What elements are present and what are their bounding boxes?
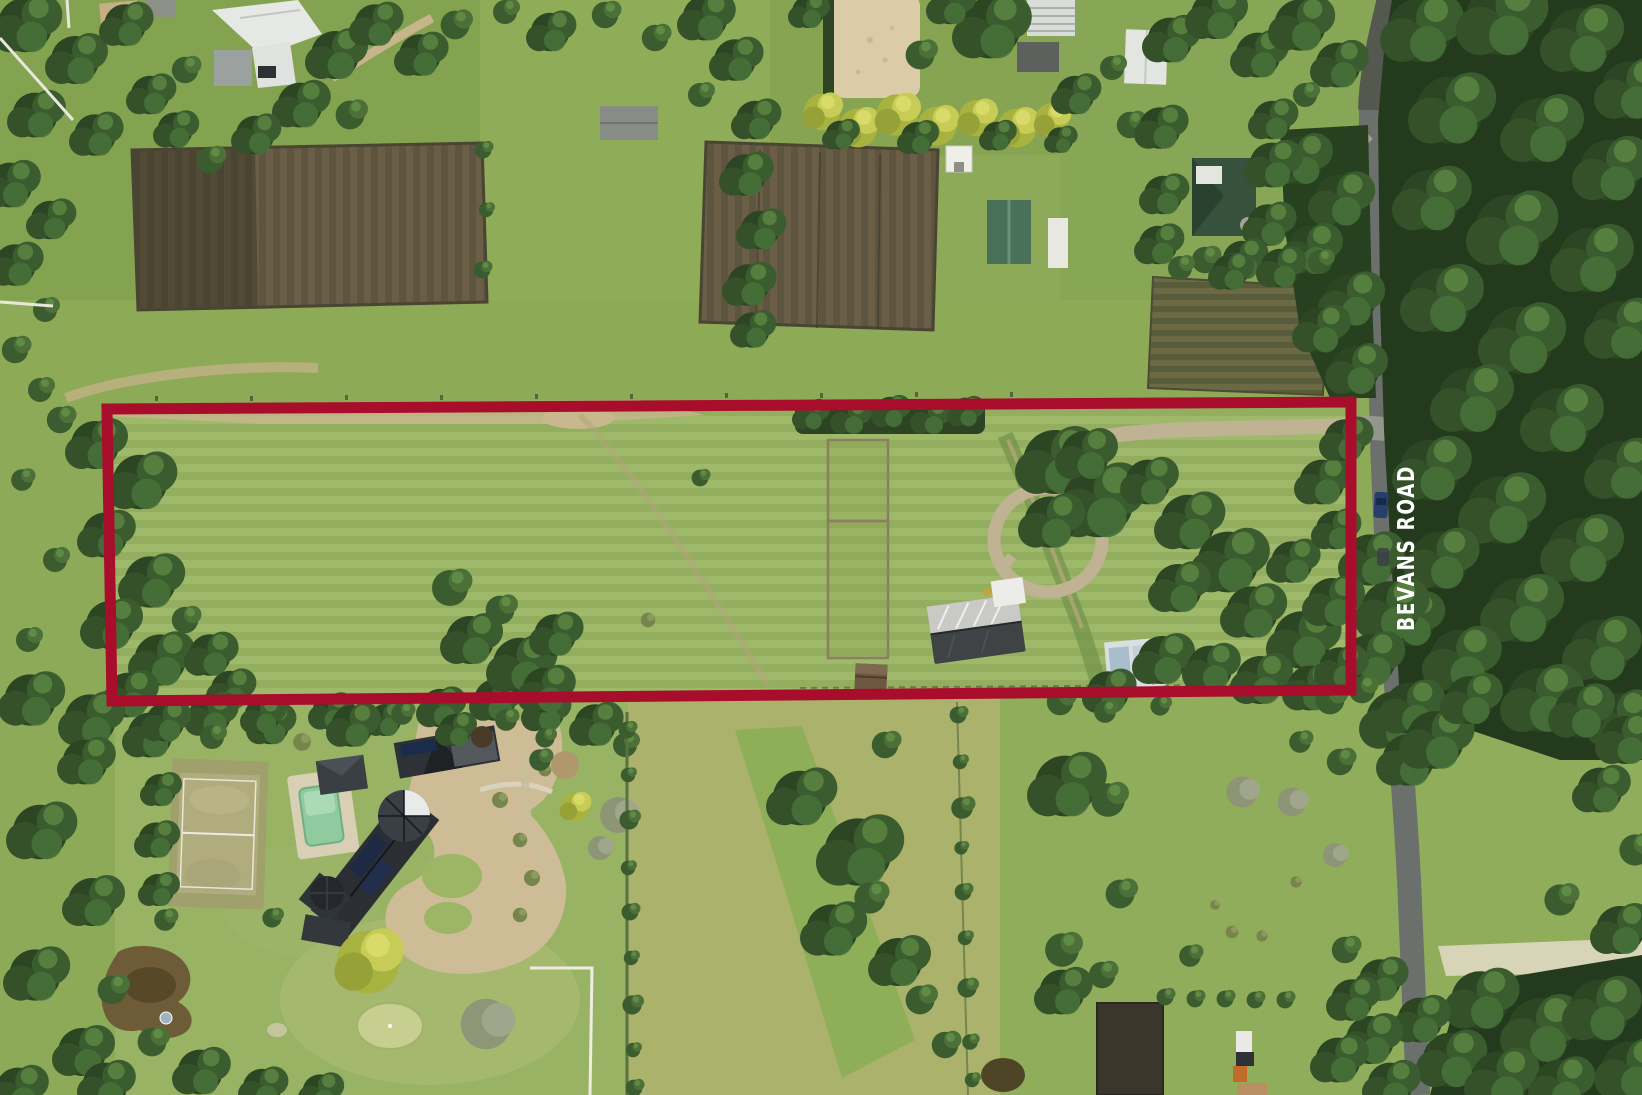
tilled-paddock-west [132,143,487,310]
garden-umbrella [160,1012,172,1024]
tennis-court [167,758,268,909]
white-field-hut [946,146,972,172]
pool-house [316,755,368,795]
golf-green [357,1003,423,1049]
road-label: BEVANS ROAD [1394,465,1420,631]
grey-shed [600,106,658,140]
sand-arena [823,0,920,98]
blue-car [1373,492,1388,519]
small-dam [981,1058,1025,1092]
white-shed-barnyard [991,577,1026,607]
stone-patch [267,1023,287,1037]
white-truck [1236,1031,1252,1055]
aerial-photo-canvas: BEVANS ROAD [0,0,1642,1095]
aerial-photo: BEVANS ROAD [0,0,1642,1095]
dark-vehicle [1236,1052,1254,1066]
parked-vehicle [1377,548,1389,566]
brown-hut [854,663,887,691]
tan-roof [1237,1083,1267,1095]
white-shed-north [1048,218,1068,268]
green-roof-barn [987,200,1031,264]
horse-pen [828,440,888,658]
maroon-bush [471,726,493,748]
orange-machine [1233,1066,1247,1082]
paddock-bush [641,613,655,627]
